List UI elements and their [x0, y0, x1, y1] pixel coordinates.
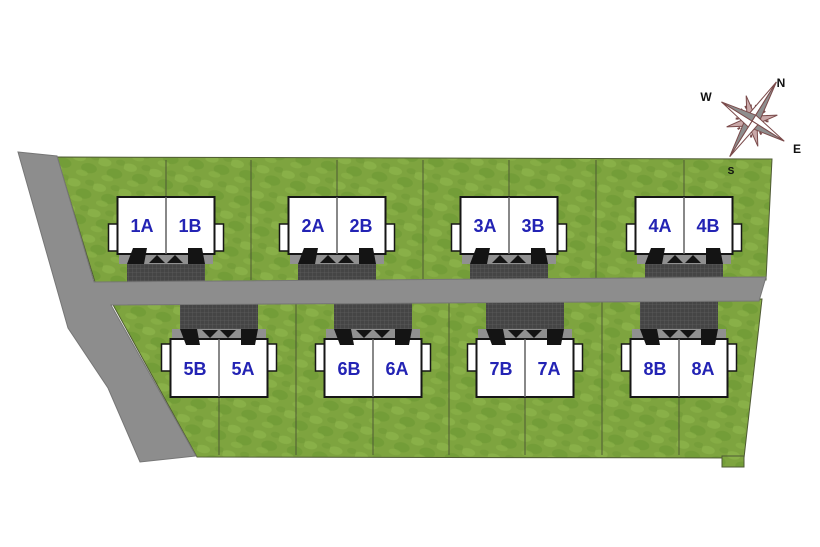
unit-label-8B: 8B — [643, 359, 666, 379]
unit-label-3A: 3A — [473, 216, 496, 236]
unit-label-6A: 6A — [385, 359, 408, 379]
building-5: 5B5A — [162, 329, 277, 397]
grass-notch — [722, 456, 744, 467]
unit-label-5A: 5A — [231, 359, 254, 379]
unit-label-3B: 3B — [521, 216, 544, 236]
unit-label-6B: 6B — [337, 359, 360, 379]
building-6: 6B6A — [316, 329, 431, 397]
unit-label-1B: 1B — [178, 216, 201, 236]
unit-label-8A: 8A — [691, 359, 714, 379]
compass-label-n: N — [777, 76, 786, 90]
entry-steps — [241, 329, 258, 345]
site-plan-svg: 1A1B2A2B3A3B4A4B5B5A6B6A7B7A8B8A NWES — [0, 0, 820, 547]
building-7: 7B7A — [468, 329, 583, 397]
compass-label-w: W — [700, 90, 712, 104]
unit-label-7B: 7B — [489, 359, 512, 379]
building-3: 3A3B — [452, 197, 567, 264]
compass-label-s: S — [728, 166, 735, 177]
entry-steps — [188, 248, 205, 264]
unit-label-7A: 7A — [537, 359, 560, 379]
building-1: 1A1B — [109, 197, 224, 264]
unit-label-2B: 2B — [349, 216, 372, 236]
unit-label-4A: 4A — [648, 216, 671, 236]
site-plan: 1A1B2A2B3A3B4A4B5B5A6B6A7B7A8B8A NWES — [0, 0, 820, 547]
building-8: 8B8A — [622, 329, 737, 397]
building-4: 4A4B — [627, 197, 742, 264]
unit-label-2A: 2A — [301, 216, 324, 236]
unit-label-5B: 5B — [183, 359, 206, 379]
unit-label-4B: 4B — [696, 216, 719, 236]
unit-label-1A: 1A — [130, 216, 153, 236]
compass-label-e: E — [793, 142, 801, 156]
building-2: 2A2B — [280, 197, 395, 264]
